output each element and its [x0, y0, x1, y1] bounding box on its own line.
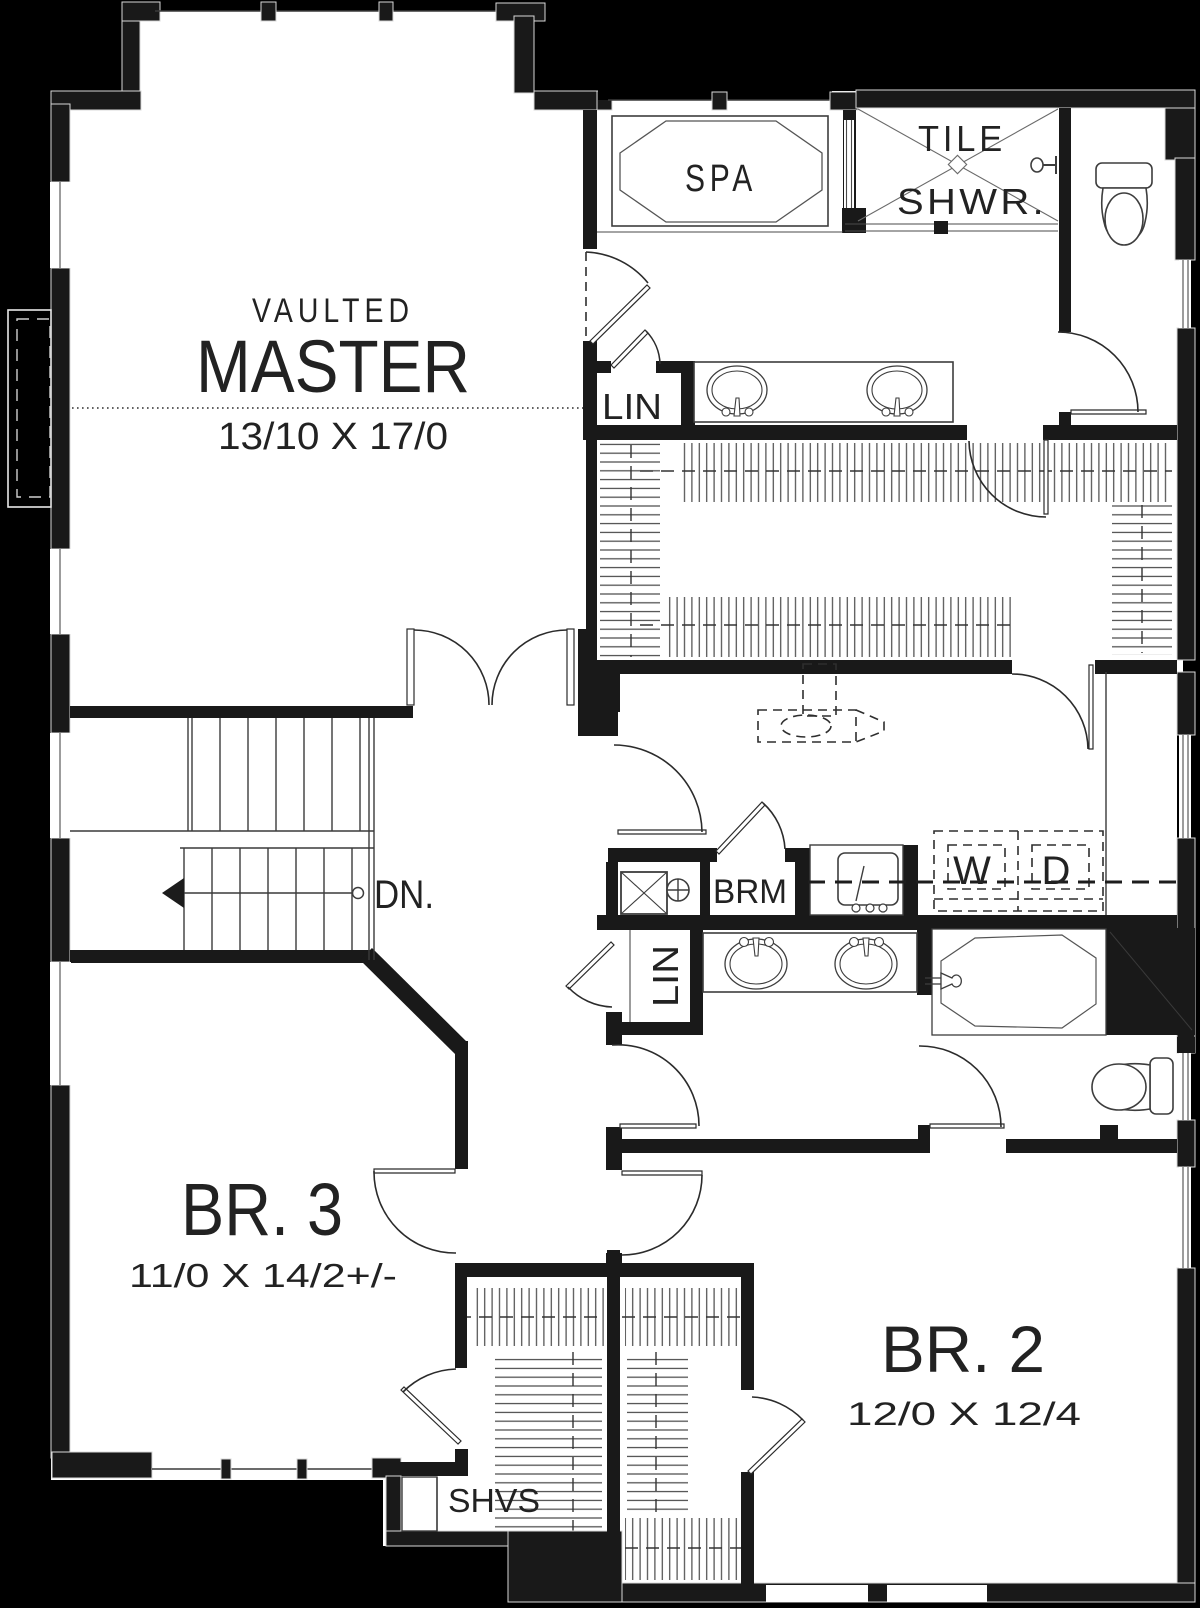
svg-text:BR. 2: BR. 2: [881, 1312, 1045, 1386]
svg-text:BRM: BRM: [713, 873, 787, 911]
svg-text:D: D: [1042, 849, 1071, 893]
svg-text:11/0 X 14/2+/-: 11/0 X 14/2+/-: [129, 1257, 397, 1294]
svg-text:SHWR.: SHWR.: [897, 181, 1047, 222]
svg-text:BR. 3: BR. 3: [181, 1168, 343, 1251]
svg-text:13/10 X 17/0: 13/10 X 17/0: [218, 416, 448, 458]
svg-text:LIN: LIN: [602, 386, 662, 427]
svg-text:MASTER: MASTER: [196, 325, 470, 408]
svg-text:DN.: DN.: [374, 873, 434, 917]
svg-text:12/0 X 12/4: 12/0 X 12/4: [847, 1396, 1081, 1432]
svg-text:LIN: LIN: [645, 945, 686, 1007]
svg-text:W: W: [953, 849, 991, 893]
svg-text:TILE: TILE: [918, 118, 1006, 159]
svg-text:SHVS: SHVS: [448, 1482, 540, 1519]
svg-text:SPA: SPA: [685, 158, 757, 200]
